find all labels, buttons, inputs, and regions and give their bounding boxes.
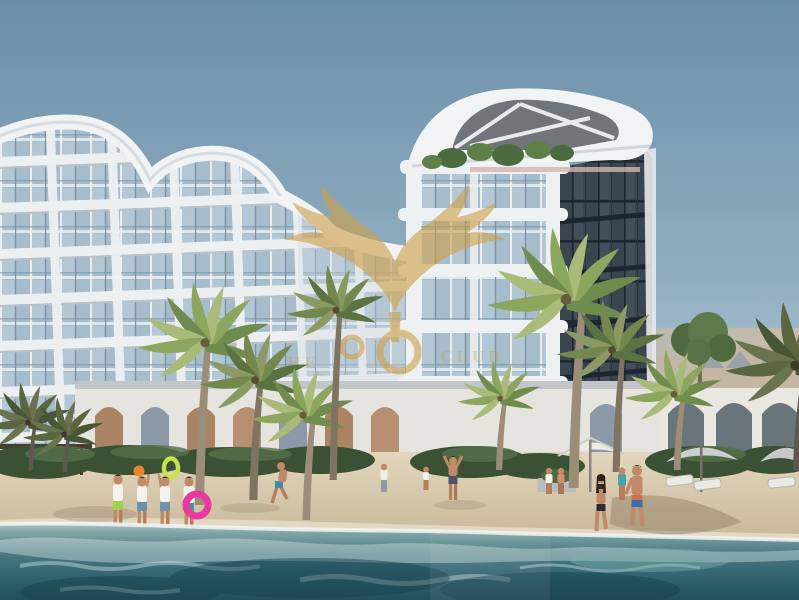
beach-person-13: [423, 467, 429, 490]
render-image: THE CLUB: [0, 0, 799, 600]
beach-ball: [134, 466, 145, 477]
scene-canvas: THE CLUB: [0, 0, 799, 600]
beach-person-8: [546, 468, 553, 494]
beach-person-9: [558, 468, 565, 494]
canopy-pink-trim: [470, 167, 640, 172]
beach-person-6: [381, 464, 388, 492]
beach-person-12: [618, 466, 626, 500]
watermark-text-right: CLUB: [440, 347, 503, 366]
